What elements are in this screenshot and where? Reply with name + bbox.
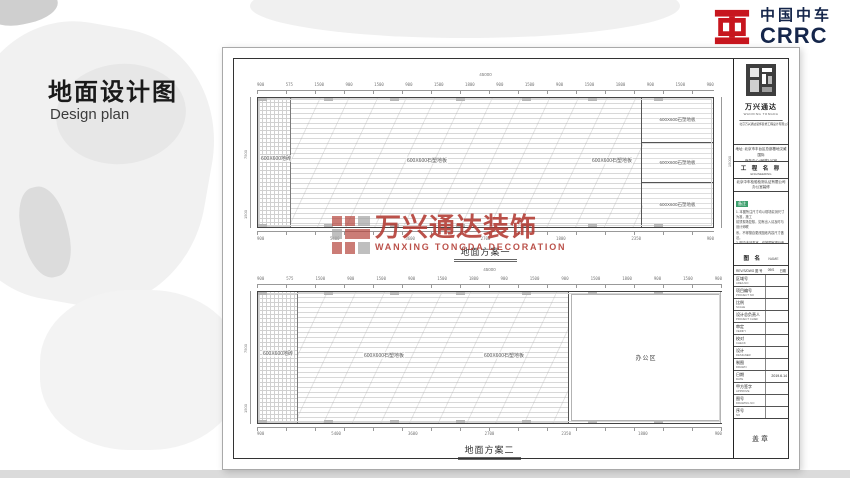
plan2-top-dimension-line — [257, 284, 722, 288]
dimension-value: 7500 — [243, 150, 248, 159]
dimension-value: 900 — [707, 82, 714, 87]
stamp-box: 盖章 — [734, 419, 788, 458]
slide: 地面设计图 Design plan 中国中车 CRRC 45000 900575… — [0, 0, 850, 478]
dimension-value: 900 — [715, 276, 722, 281]
plan2-bottom-dimension-chain: 90054003600270023501800900 — [257, 431, 722, 436]
dimension-value: 1500 — [525, 82, 535, 87]
title-block-row: 设计 DESIGNER — [734, 347, 788, 359]
title-block-rows: 区域号 AREA NO 项目编号 PROJECT NO 比例 — [734, 275, 788, 419]
plan1-room: 600X600石塑地板 — [642, 183, 713, 227]
title-block-row: 日期 DATE 2019.6.14 — [734, 371, 788, 383]
dimension-value: 900 — [257, 236, 264, 241]
dimension-value: 1500 — [374, 82, 384, 87]
dimension-value: 5400 — [331, 431, 341, 436]
crrc-logo-icon — [713, 8, 751, 46]
plan2-office-room: 办公区 — [568, 292, 723, 423]
row-label-en: DRAWN — [736, 365, 786, 369]
project-header-cn: 工 程 名 称 — [734, 164, 788, 172]
plan1-right-dimension-line: 15000 — [721, 97, 722, 228]
notes-title: 备注 — [736, 201, 748, 207]
title-block-row: 比例 SCALE — [734, 299, 788, 311]
title-block-row: 序号 NO — [734, 407, 788, 419]
plan2-plank-label: 600X600石塑地板 — [483, 352, 525, 359]
title-block-notes: 备注 1. 本图所注尺寸均以现场实测尺寸为准，施工前须现场复核，如有出入请及时与… — [734, 192, 788, 244]
title-block-address: 地址: 北京市丰台区总部基地汉威国际商务中心4号楼107室 — [734, 145, 788, 162]
brand-name-en: CRRC — [760, 24, 832, 47]
row-label-en: DESIGNER — [736, 353, 786, 357]
watermark: 万兴通达装饰 WANXING TONGDA DECORATION — [332, 214, 566, 254]
drawing-sheet: 45000 9005751500900150090015001800900150… — [222, 47, 800, 470]
title-block-logo-en: WANXING TONGDA — [734, 112, 788, 116]
world-map-shape — [250, 0, 680, 38]
plan1-room-label: 600X600石塑地板 — [659, 202, 695, 208]
plan2-caption-row: 地面方案二 — [257, 440, 722, 460]
page-subtitle: Design plan — [50, 106, 129, 123]
world-map-shape — [40, 290, 240, 450]
plan2-office-label: 办公区 — [635, 353, 656, 362]
plan1-rooms: 600X600石塑地板 600X600石塑地板 600X600石塑地板 — [641, 98, 713, 227]
crrc-logo: 中国中车 CRRC — [713, 8, 832, 47]
dimension-value: 2700 — [485, 431, 495, 436]
page-title: 地面设计图 — [48, 72, 178, 107]
note-line: 系，不得擅自更改图纸内容尺寸做法。 — [734, 231, 788, 241]
row-label-en: VERIFY — [736, 329, 786, 333]
dimension-value: 2350 — [561, 431, 571, 436]
dimension-value: 900 — [707, 236, 714, 241]
dimension-value: 1800 — [465, 82, 475, 87]
dimension-value: 900 — [257, 276, 264, 281]
dimension-value: 7500 — [243, 344, 248, 353]
title-block-name-section: 图 名 NAME — [734, 244, 788, 266]
title-block-row: 图号 DRAWING NO — [734, 395, 788, 407]
project-header-en: ENGINEERING — [734, 172, 788, 176]
title-block-row: 设计总负责人 PROJECT CHIEF — [734, 311, 788, 323]
rev-label: REV/S/DWG 图 号 — [736, 268, 762, 273]
plan1-room-label: 600X600石塑地板 — [659, 160, 695, 166]
title-block-row: 制图 DRAWN — [734, 359, 788, 371]
row-label-en: SCALE — [736, 305, 786, 309]
dimension-value: 900 — [257, 431, 264, 436]
dimension-value: 1500 — [437, 276, 447, 281]
plan2-left-dimension-line: 7500 1500 — [250, 291, 251, 424]
title-block-logo-section: 万兴通达 WANXING TONGDA 北京万兴通达装饰装修工程设计有限公司 — [734, 59, 788, 145]
plan1-top-dimension-chain: 9005751500900150090015001800900150090015… — [257, 82, 714, 87]
dimension-value: 900 — [556, 82, 563, 87]
plan1-plank-zone: 600X600石塑地板 600X600石塑地板 — [291, 98, 643, 227]
rev-value: 09/S — [768, 268, 775, 272]
dimension-value: 900 — [405, 82, 412, 87]
drawing-frame: 45000 9005751500900150090015001800900150… — [233, 58, 789, 459]
plan2-plank-label: 600X600石塑地板 — [363, 352, 405, 359]
watermark-text-en: WANXING TONGDA DECORATION — [375, 242, 566, 252]
plan2-tile-zone: 600X600地砖 — [258, 292, 298, 423]
title-block-logo-cn: 万兴通达 — [734, 102, 788, 112]
plan1-tile-label: 600X600地砖 — [260, 155, 292, 162]
title-block-row: 项目编号 PROJECT NO — [734, 287, 788, 299]
dimension-value: 1500 — [530, 276, 540, 281]
row-label-en: AREA NO — [736, 281, 786, 285]
dimension-value: 900 — [257, 82, 264, 87]
dimension-value: 15000 — [727, 156, 732, 167]
title-block-company: 北京万兴通达装饰装修工程设计有限公司 — [739, 120, 782, 128]
row-label-en: NO — [736, 413, 786, 417]
plan1-room: 600X600石塑地板 — [642, 143, 713, 183]
column-markers — [258, 98, 713, 101]
dimension-value: 900 — [561, 276, 568, 281]
dimension-value: 1800 — [638, 431, 648, 436]
title-block-row: 甲方签字 APPROVE — [734, 383, 788, 395]
watermark-text-cn: 万兴通达装饰 — [375, 214, 566, 241]
name-header-cn: 图 名 — [743, 256, 762, 262]
brand-name-cn: 中国中车 — [760, 8, 832, 24]
project-name: 北京中车检验检测认证有限公司办公室装修 — [734, 178, 788, 192]
row-label-en: APPROVE — [736, 389, 786, 393]
dimension-value: 900 — [654, 276, 661, 281]
plan2-floor-plan: 600X600地砖 600X600石塑地板 600X600石塑地板 办公区 — [257, 291, 722, 424]
dimension-value: 3600 — [408, 431, 418, 436]
dimension-value: 1500 — [315, 276, 325, 281]
dimension-value: 1500 — [591, 276, 601, 281]
name-header-en: NAME — [768, 257, 778, 261]
plan1-top-dimension-line — [257, 90, 714, 94]
plan2-plank-zone: 600X600石塑地板 600X600石塑地板 — [298, 292, 568, 423]
plan1-plank-label: 600X600石塑地板 — [591, 157, 633, 164]
row-label-en: CHECK — [736, 341, 786, 345]
row-label-en: DRAWING NO — [736, 401, 786, 405]
dimension-value: 1500 — [683, 276, 693, 281]
row-value: 2019.6.14 — [771, 374, 787, 378]
plan2-total-dimension: 45000 — [257, 267, 722, 272]
dimension-value: 900 — [496, 82, 503, 87]
dimension-value: 1500 — [376, 276, 386, 281]
dimension-value: 900 — [647, 82, 654, 87]
address-line: 地址: 北京市丰台区总部基地汉威国际 — [734, 147, 788, 159]
dimension-value: 900 — [347, 276, 354, 281]
row-label-en: PROJECT CHIEF — [736, 317, 786, 321]
plan1-left-dimension-line: 7500 1500 — [250, 97, 251, 228]
dimension-value: 1500 — [434, 82, 444, 87]
dimension-value: 900 — [715, 431, 722, 436]
plan2-caption: 地面方案二 — [458, 443, 520, 460]
dimension-value: 1500 — [243, 210, 248, 219]
title-block-project-section: 工 程 名 称 ENGINEERING 北京中车检验检测认证有限公司办公室装修 — [734, 162, 788, 192]
title-block: 万兴通达 WANXING TONGDA 北京万兴通达装饰装修工程设计有限公司 地… — [733, 59, 788, 458]
dimension-value: 1500 — [314, 82, 324, 87]
wanxing-logo-icon — [746, 64, 776, 96]
title-block-row: 校对 CHECK — [734, 335, 788, 347]
wanxing-watermark-logo-icon — [332, 216, 370, 254]
dimension-value: 2350 — [631, 236, 641, 241]
plan1-plank-label: 600X600石塑地板 — [406, 157, 448, 164]
dimension-value: 900 — [345, 82, 352, 87]
rev-date-label: 日期 — [780, 268, 786, 273]
dimension-value: 900 — [408, 276, 415, 281]
title-block-row: 审定 VERIFY — [734, 323, 788, 335]
bottom-gray-strip — [0, 470, 850, 478]
note-line: 1. 本图所注尺寸均以现场实测尺寸为准，施工 — [734, 210, 788, 220]
title-block-row: 区域号 AREA NO — [734, 275, 788, 287]
plan2-tile-label: 600X600地砖 — [262, 350, 294, 357]
note-line: 前须现场复核，如有出入请及时与设计师联 — [734, 220, 788, 230]
row-label-en: PROJECT NO — [736, 293, 786, 297]
title-block-rev-row: REV/S/DWG 图 号 09/S 日期 — [734, 266, 788, 275]
plan1-floor-plan: 600X600地砖 600X600石塑地板 600X600石塑地板 600X60… — [257, 97, 714, 228]
dimension-value: 1500 — [243, 404, 248, 413]
dimension-value: 1500 — [675, 82, 685, 87]
dimension-value: 1800 — [469, 276, 479, 281]
dimension-value: 575 — [286, 82, 293, 87]
dimension-value: 1800 — [622, 276, 632, 281]
plan2-top-dimension-chain: 9005751500900150090015001800900150090015… — [257, 276, 722, 281]
dimension-value: 900 — [501, 276, 508, 281]
dimension-value: 1500 — [585, 82, 595, 87]
dimension-value: 575 — [286, 276, 293, 281]
plan1-tile-zone: 600X600地砖 — [258, 98, 291, 227]
plan1-room: 600X600石塑地板 — [642, 98, 713, 143]
plan1-total-dimension: 45000 — [257, 72, 714, 77]
column-markers — [258, 292, 721, 295]
dimension-value: 1800 — [616, 82, 626, 87]
column-markers — [258, 420, 721, 423]
plan1-room-label: 600X600石塑地板 — [659, 117, 695, 123]
